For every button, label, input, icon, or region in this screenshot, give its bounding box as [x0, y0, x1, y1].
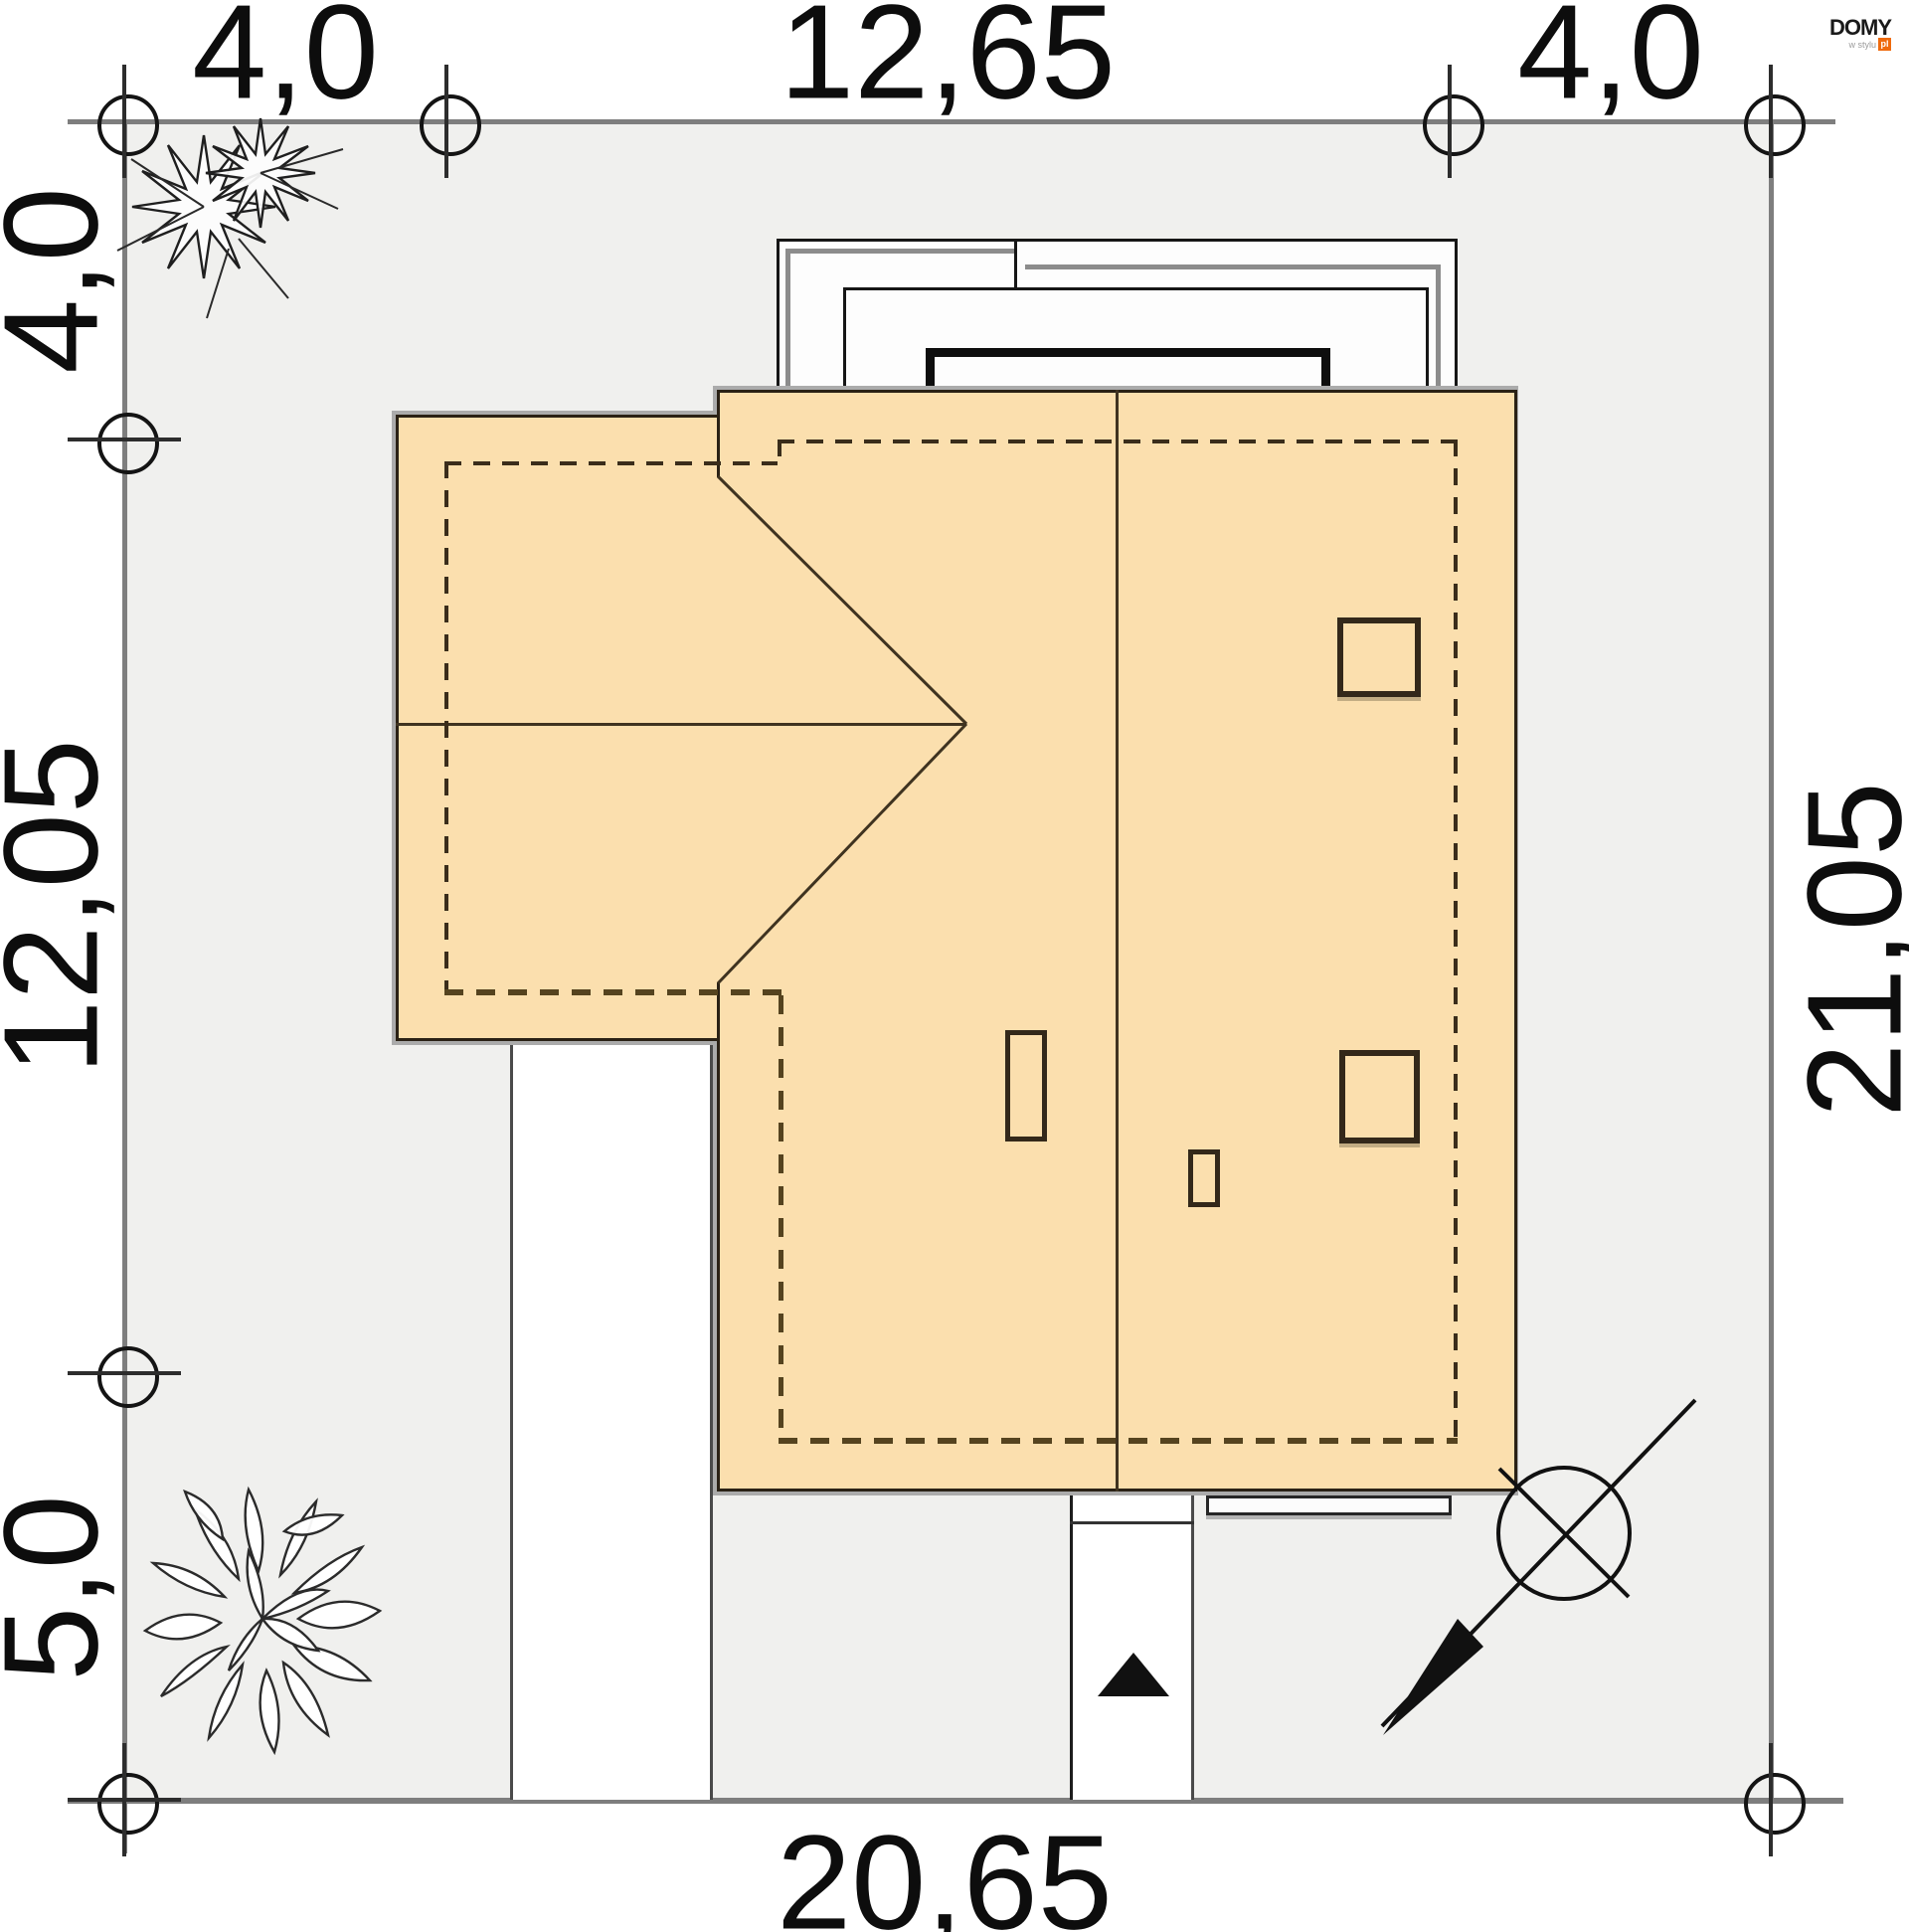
dashed-eave-wing-bottom [444, 989, 782, 995]
roof-window-small [1188, 1149, 1220, 1207]
walkway-step-line [1070, 1521, 1194, 1524]
dim-left-middle: 12,05 [0, 739, 118, 1075]
entrance-arrow-icon [1084, 1641, 1183, 1710]
ridge-line-main [1116, 390, 1119, 1492]
terrace-curb-right-side [1436, 264, 1441, 392]
dashed-eave-main-right [1454, 439, 1458, 1444]
chimney-lower [1339, 1050, 1420, 1143]
valley-lines [0, 0, 1094, 1094]
dim-top-right: 4,0 [1517, 0, 1704, 119]
dashed-eave-connector [779, 995, 783, 1441]
bush-sketch [109, 1442, 437, 1810]
dashed-eave-main-top [778, 439, 1458, 443]
terrace-outline-right [1455, 239, 1458, 392]
brand-logo: DOMY w stylu pl [1796, 18, 1891, 51]
dim-right-side: 21,05 [1788, 782, 1909, 1118]
dim-top-left: 4,0 [192, 0, 379, 119]
brand-name: DOMY [1796, 18, 1891, 38]
plot-boundary-right [1769, 121, 1774, 1804]
house-edge-main-right [1514, 390, 1517, 1492]
terrace-inner-right [1426, 287, 1429, 392]
roof-window-tall [1005, 1030, 1047, 1142]
site-plan: 4,0 12,65 4,0 4,0 12,05 5,0 21,05 20,65 … [0, 0, 1909, 1932]
dashed-eave-wing-left [444, 461, 448, 995]
dim-left-top: 4,0 [0, 187, 118, 374]
chimney-upper [1337, 617, 1421, 697]
dim-top-center: 12,65 [780, 0, 1116, 119]
brand-tagline: w stylu [1848, 40, 1876, 50]
dashed-eave-main-bottom [779, 1438, 1458, 1444]
driveway-left [510, 1041, 713, 1800]
dashed-eave-wing-top [444, 461, 778, 465]
brand-tld-badge: pl [1878, 38, 1891, 51]
dim-bottom-center: 20,65 [777, 1816, 1113, 1932]
dim-left-bottom: 5,0 [0, 1494, 118, 1681]
north-symbol-icon [1362, 1382, 1710, 1750]
